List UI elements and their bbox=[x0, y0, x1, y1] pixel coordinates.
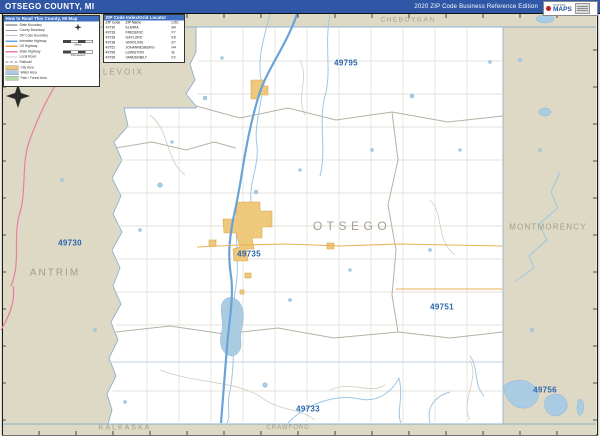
zip-label-49756: 49756 bbox=[533, 386, 557, 395]
brand-logo-text: market MAPS bbox=[553, 3, 572, 14]
us-highway-swatch bbox=[6, 46, 18, 48]
water-area-swatch bbox=[6, 71, 19, 76]
edition-label: 2020 ZIP Code Business Reference Edition bbox=[414, 4, 538, 10]
zip-index-panel: ZIP Code Index/Grid Locator ZIP Code ZIP… bbox=[103, 14, 185, 63]
park-area-swatch bbox=[6, 76, 19, 81]
map-pin-icon bbox=[546, 6, 551, 11]
county-label-antrim: ANTRIM bbox=[30, 268, 80, 279]
legend-scale-area: Miles Kilometers bbox=[60, 22, 96, 81]
city-area-swatch bbox=[6, 65, 19, 70]
state-highway-swatch bbox=[6, 51, 18, 53]
logo-info-block bbox=[575, 3, 590, 14]
zip-label-49795: 49795 bbox=[334, 59, 358, 68]
legend-item: Park / Forest Area bbox=[6, 75, 61, 80]
page-title: OTSEGO COUNTY, MI bbox=[5, 2, 94, 11]
county-boundary-swatch bbox=[6, 30, 18, 31]
zip-label-49735: 49735 bbox=[237, 250, 261, 259]
zip-boundary-swatch bbox=[6, 35, 18, 36]
zip-label-49730: 49730 bbox=[58, 239, 82, 248]
zip-index-row: 49795VANDERBILTF2 bbox=[104, 56, 184, 61]
interstate-swatch bbox=[6, 40, 18, 42]
legend-compass-icon bbox=[74, 24, 82, 32]
state-boundary-swatch bbox=[6, 25, 18, 26]
county-label-kalkaska: KALKASKA bbox=[99, 425, 152, 432]
miles-scale-label: Miles bbox=[74, 44, 81, 47]
county-label-crawford: CRAWFORD bbox=[266, 425, 309, 431]
local-road-swatch bbox=[6, 56, 18, 57]
zip-label-49751: 49751 bbox=[430, 303, 454, 312]
railroad-swatch bbox=[6, 62, 18, 63]
zip-label-49733: 49733 bbox=[296, 405, 320, 414]
km-scale-label: Kilometers bbox=[71, 54, 85, 57]
map-legend-panel: How to Read This County, MI Map State Bo… bbox=[3, 15, 100, 87]
county-label-montmorency: MONTMORENCY bbox=[509, 223, 587, 232]
county-label-cheboygan: CHEBOYGAN bbox=[380, 17, 435, 24]
legend-items: State Boundary County Boundary ZIP Code … bbox=[4, 22, 60, 81]
page: CHEBOYGAN CHARLEVOIX MONTMORENCY ANTRIM … bbox=[0, 0, 600, 436]
county-label-otsego: OTSEGO bbox=[313, 219, 391, 233]
header-bar: OTSEGO COUNTY, MI 2020 ZIP Code Business… bbox=[0, 0, 600, 14]
brand-logo: market MAPS bbox=[543, 1, 598, 16]
